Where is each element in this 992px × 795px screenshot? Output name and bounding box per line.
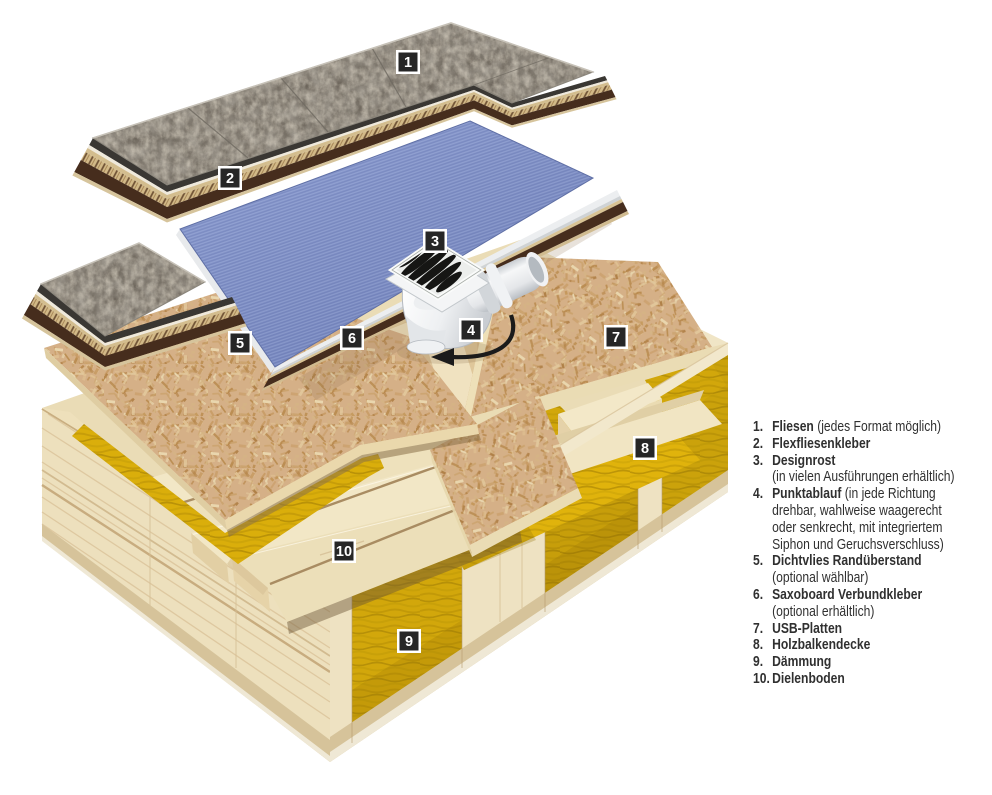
svg-text:4: 4	[467, 323, 475, 339]
svg-text:8: 8	[641, 441, 649, 457]
svg-text:5: 5	[236, 336, 244, 352]
svg-text:7: 7	[612, 330, 620, 346]
svg-text:2: 2	[226, 171, 234, 187]
svg-text:6: 6	[348, 331, 356, 347]
svg-text:1: 1	[404, 55, 412, 71]
svg-text:10: 10	[336, 544, 352, 560]
svg-text:9: 9	[405, 634, 413, 650]
svg-text:3: 3	[431, 234, 439, 250]
